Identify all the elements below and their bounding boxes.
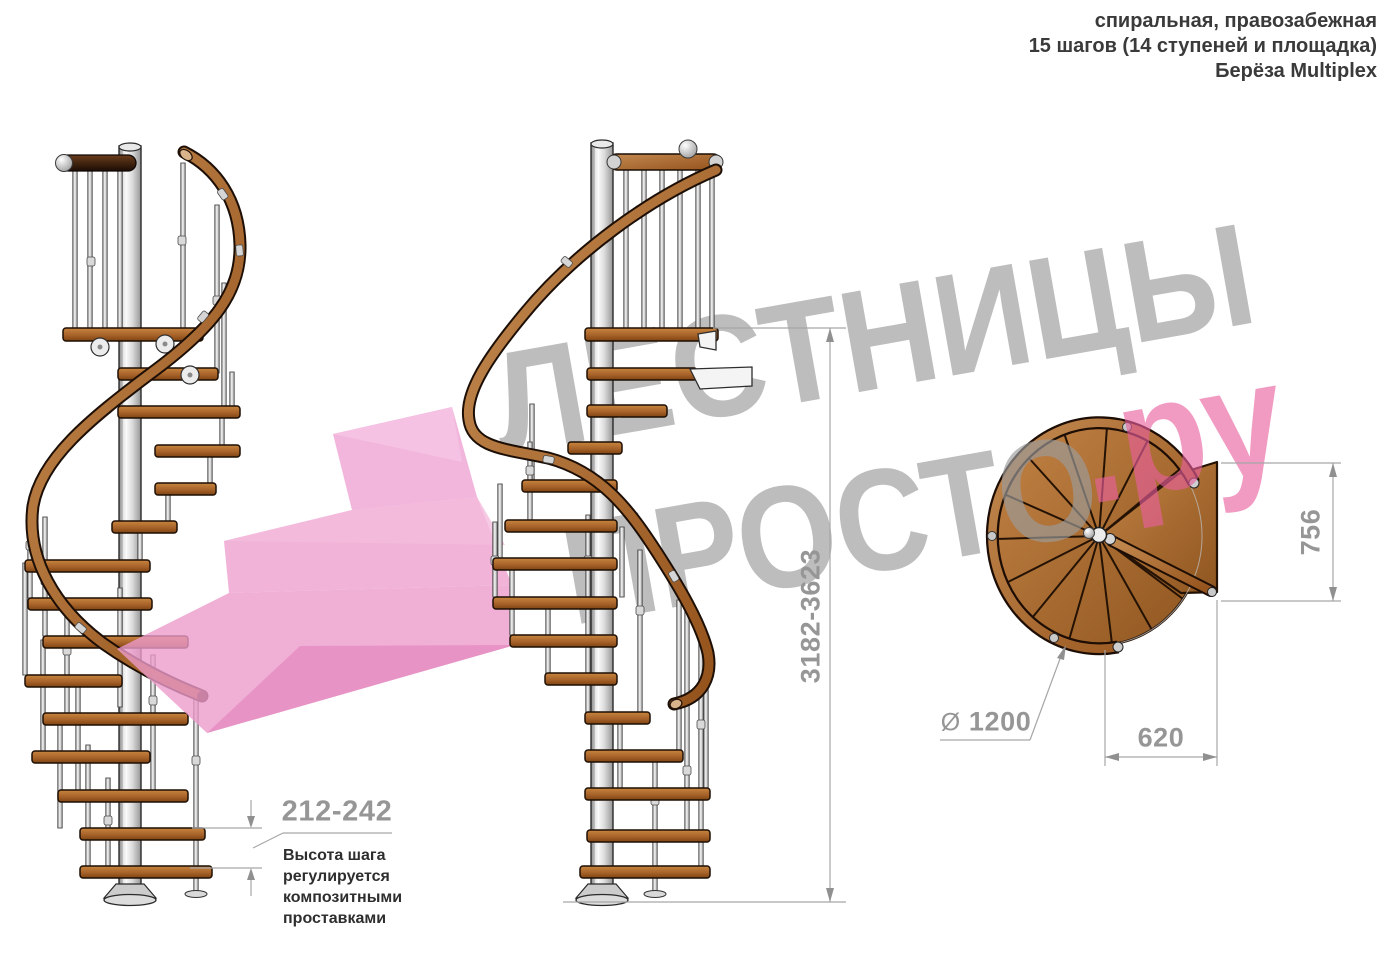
support-foot xyxy=(185,891,207,898)
base-plate xyxy=(576,895,628,906)
title-line-steps: 15 шагов (14 ступеней и площадка) xyxy=(1029,34,1377,59)
dim-step-height-label: 212-242 xyxy=(282,796,393,829)
drawing-canvas: ЛЕСТНИЦЫ ПРОСТО .ру xyxy=(0,0,1400,958)
note-line: Высота шага xyxy=(283,845,402,866)
staircase-side-view-left xyxy=(23,143,244,906)
platform-tread xyxy=(63,328,203,341)
pole-cap xyxy=(119,143,141,151)
dim-landing-depth-label: 756 xyxy=(1296,509,1327,556)
leader-diameter xyxy=(1030,648,1064,740)
pole-cap xyxy=(591,140,613,148)
staircase-drawing: ЛЕСТНИЦЫ ПРОСТО .ру xyxy=(0,0,1400,958)
entry-rail-cap xyxy=(1208,588,1217,597)
title-block: спиральная, правозабежная 15 шагов (14 с… xyxy=(1029,9,1377,84)
finial-ball xyxy=(56,155,73,172)
title-line-type: спиральная, правозабежная xyxy=(1029,9,1377,34)
diameter-value: 1200 xyxy=(969,707,1031,737)
dim-diameter-label: Ø 1200 xyxy=(941,707,1032,738)
support-foot xyxy=(644,891,666,898)
dim-total-height-label: 3182-3623 xyxy=(796,549,827,684)
leader-step xyxy=(253,833,283,848)
note-line: проставками xyxy=(283,908,402,929)
base-plate xyxy=(104,895,156,906)
finial-ball xyxy=(679,140,697,158)
note-line: композитными xyxy=(283,887,402,908)
diameter-symbol-icon: Ø xyxy=(941,709,961,737)
dim-landing-width-label: 620 xyxy=(1138,723,1185,754)
top-guard-rail xyxy=(609,154,721,170)
step-height-note: Высота шага регулируется композитными пр… xyxy=(283,845,402,929)
title-line-material: Берёза Multiplex xyxy=(1029,59,1377,84)
baluster-cap xyxy=(1050,634,1059,643)
note-line: регулируется xyxy=(283,866,402,887)
watermark-domain: .ру xyxy=(1064,326,1297,538)
rail-cap xyxy=(607,155,621,169)
rail-cap xyxy=(1113,642,1123,652)
